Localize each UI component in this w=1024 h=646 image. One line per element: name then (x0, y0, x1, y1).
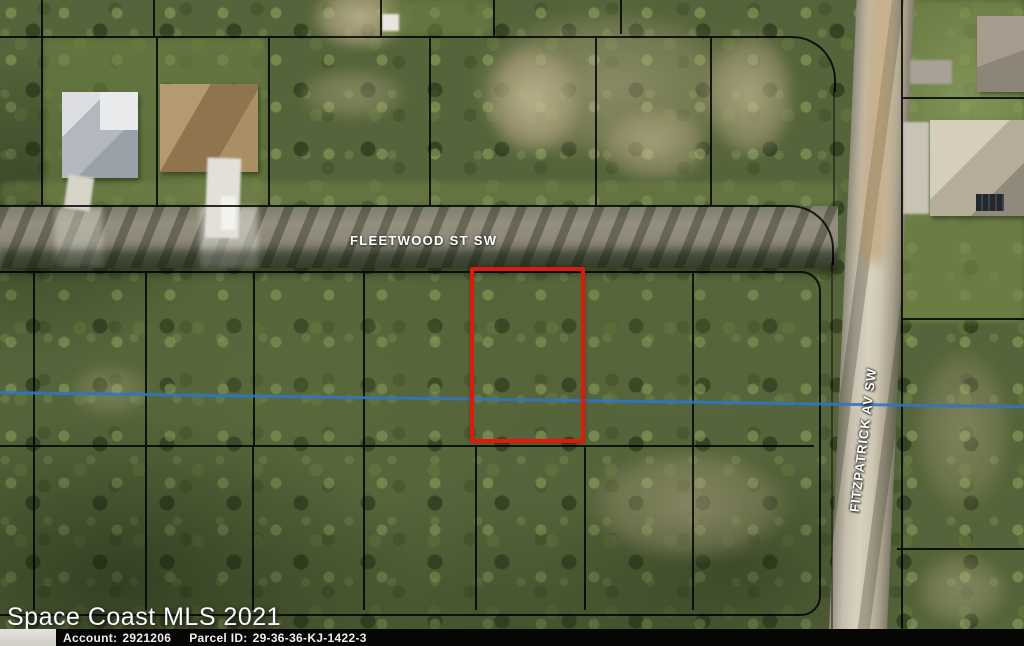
driveway (903, 122, 929, 214)
sand-patch (580, 95, 730, 195)
parcel-boundary-line (897, 548, 1024, 550)
parcel-boundary-line (493, 0, 495, 36)
parcel-boundary-line (595, 36, 597, 205)
sand-patch (900, 540, 1024, 640)
parcel-boundary-line (692, 273, 694, 445)
parcel-boundary-line (252, 447, 254, 610)
parcel-boundary-line (380, 0, 382, 36)
parked-vehicle (221, 196, 236, 230)
parcel-boundary-line (475, 447, 477, 610)
dirt-road-center (859, 0, 897, 263)
road-edge-line (831, 262, 833, 646)
info-strip: Account: 2921206 Parcel ID: 29-36-36-KJ-… (56, 629, 1024, 646)
parcel-boundary-line (710, 36, 712, 205)
house-ne-small (977, 16, 1024, 92)
parcel-boundary-line (0, 205, 752, 207)
parcel-boundary-line (901, 0, 903, 629)
parcel-boundary-line (33, 273, 35, 445)
sand-patch (898, 320, 1024, 540)
account-label: Account: (63, 631, 117, 645)
parcel-boundary-line (901, 318, 1024, 320)
parcel-boundary-line (145, 273, 147, 445)
parcel-boundary-line (692, 447, 694, 610)
info-bar: Account: 2921206 Parcel ID: 29-36-36-KJ-… (0, 629, 1024, 646)
parcel-id-value: 29-36-36-KJ-1422-3 (253, 631, 367, 645)
parcel-boundary-line (253, 273, 255, 445)
account-value: 2921206 (122, 631, 171, 645)
info-bar-gap (0, 629, 56, 646)
block-boundary (0, 271, 821, 616)
parcel-boundary-line (901, 97, 1024, 99)
subject-parcel-outline (470, 267, 585, 443)
parcel-boundary-line (363, 447, 365, 610)
parked-trailer (910, 60, 952, 84)
house-gray-roof-wing (100, 92, 138, 130)
parcel-boundary-line (156, 37, 158, 205)
parcel-boundary-line (268, 37, 270, 205)
street-label-fleetwood: FLEETWOOD ST SW (350, 233, 497, 248)
sand-patch (280, 58, 425, 130)
parcel-boundary-line (363, 273, 365, 445)
parcel-boundary-line (33, 447, 35, 610)
parcel-id-label: Parcel ID: (189, 631, 247, 645)
parcel-boundary-line (429, 36, 431, 205)
aerial-map: FLEETWOOD ST SW FITZPATRICK AV SW Space … (0, 0, 1024, 646)
road-edge-line (833, 88, 835, 206)
parcel-boundary-line (584, 447, 586, 610)
grass-verge (0, 182, 838, 206)
parcel-boundary-line (153, 0, 155, 36)
parcel-boundary-corner (756, 36, 836, 92)
sand-patch (468, 25, 598, 175)
mls-watermark: Space Coast MLS 2021 (7, 603, 281, 632)
parcel-boundary-line (0, 36, 758, 38)
parcel-boundary-line (620, 0, 622, 34)
solar-panels (976, 194, 1004, 211)
parcel-boundary-line (145, 447, 147, 610)
shed (382, 14, 399, 31)
parcel-boundary-line (41, 0, 43, 205)
mls-aerial-map-screenshot: FLEETWOOD ST SW FITZPATRICK AV SW Space … (0, 0, 1024, 646)
